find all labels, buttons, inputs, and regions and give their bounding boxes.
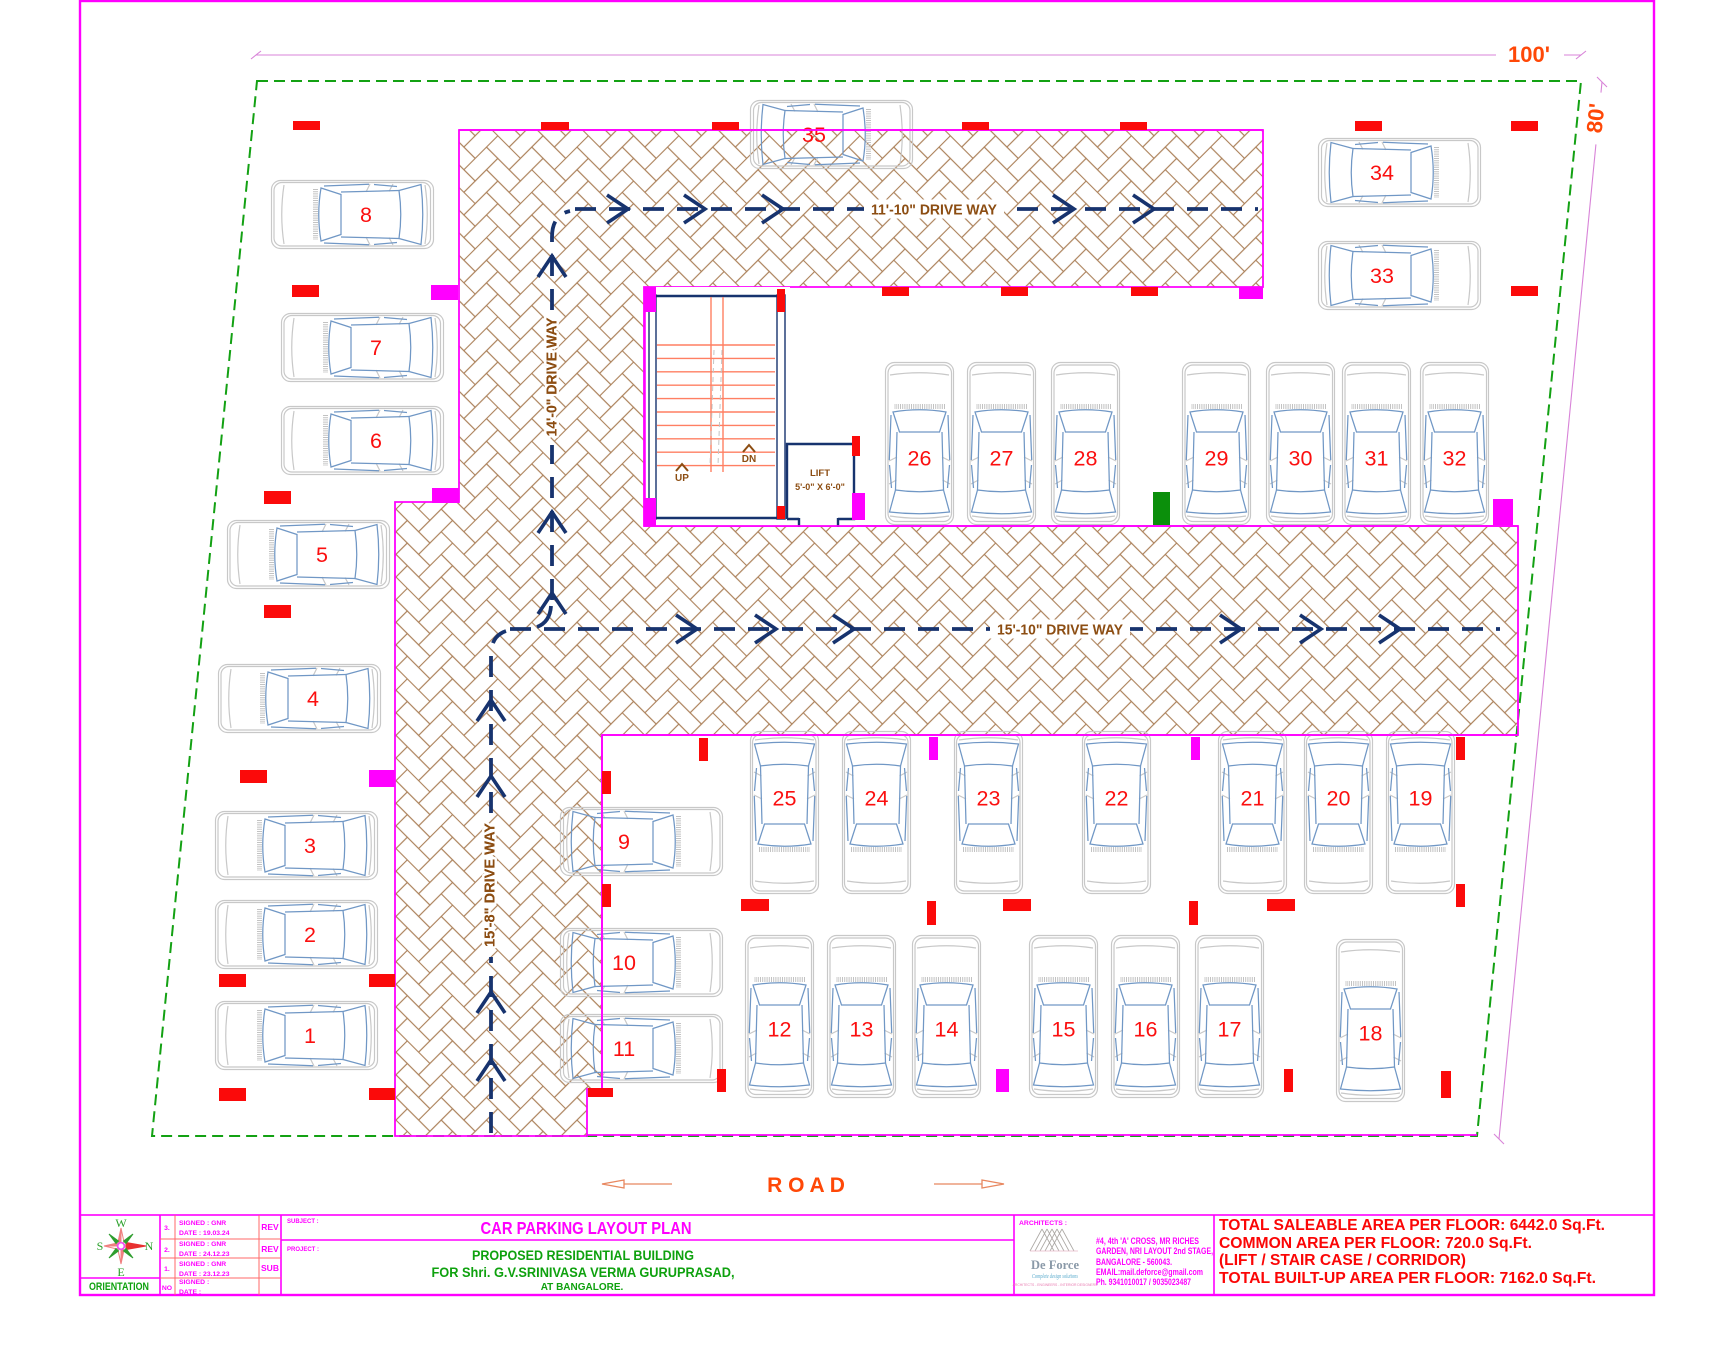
svg-text:32: 32 <box>1443 447 1467 471</box>
svg-text:1.: 1. <box>164 1266 170 1273</box>
svg-text:(LIFT / STAIR CASE / CORRIDOR): (LIFT / STAIR CASE / CORRIDOR) <box>1219 1252 1466 1269</box>
svg-text:11: 11 <box>613 1037 635 1061</box>
svg-text:5'-0" X 6'-0": 5'-0" X 6'-0" <box>795 482 845 492</box>
svg-text:SIGNED : GNR: SIGNED : GNR <box>179 1220 226 1227</box>
svg-text:SIGNED : GNR: SIGNED : GNR <box>179 1241 226 1248</box>
svg-text:SIGNED : GNR: SIGNED : GNR <box>179 1261 226 1268</box>
svg-text:18: 18 <box>1359 1022 1383 1046</box>
svg-text:22: 22 <box>1105 787 1129 811</box>
svg-text:ARCHITECTS - ENGINEERS - INTER: ARCHITECTS - ENGINEERS - INTERIOR DESIGN… <box>1013 1283 1099 1287</box>
svg-text:3: 3 <box>304 834 316 858</box>
svg-text:2.: 2. <box>164 1247 170 1254</box>
svg-text:DATE : 24.12.23: DATE : 24.12.23 <box>179 1251 230 1258</box>
svg-text:TOTAL SALEABLE AREA PER FLOOR:: TOTAL SALEABLE AREA PER FLOOR: 6442.0 Sq… <box>1219 1217 1605 1234</box>
svg-text:100': 100' <box>1508 42 1550 67</box>
svg-text:DATE : 23.12.23: DATE : 23.12.23 <box>179 1271 230 1278</box>
svg-text:2: 2 <box>304 923 316 947</box>
svg-text:REV: REV <box>261 1222 279 1232</box>
svg-text:27: 27 <box>990 447 1014 471</box>
svg-text:15: 15 <box>1052 1018 1076 1042</box>
svg-text:Complete design solutions: Complete design solutions <box>1032 1274 1078 1280</box>
svg-text:DATE :: DATE : <box>179 1289 201 1296</box>
svg-text:ARCHITECTS :: ARCHITECTS : <box>1019 1220 1067 1227</box>
svg-text:23: 23 <box>977 787 1001 811</box>
svg-text:N: N <box>145 1239 154 1253</box>
svg-text:26: 26 <box>908 447 932 471</box>
svg-text:GARDEN, NRI LAYOUT 2nd STAGE,: GARDEN, NRI LAYOUT 2nd STAGE, <box>1096 1246 1213 1257</box>
svg-text:FOR Shri. G.V.SRINIVASA VERMA: FOR Shri. G.V.SRINIVASA VERMA GURUPRASAD… <box>432 1265 735 1280</box>
svg-text:REV: REV <box>261 1244 279 1254</box>
svg-text:ORIENTATION: ORIENTATION <box>89 1281 149 1293</box>
svg-text:14'-0" DRIVE WAY: 14'-0" DRIVE WAY <box>544 318 561 437</box>
svg-text:LIFT: LIFT <box>810 468 830 479</box>
svg-text:16: 16 <box>1134 1018 1158 1042</box>
svg-text:14: 14 <box>935 1018 959 1042</box>
svg-text:24: 24 <box>865 787 889 811</box>
svg-text:DN: DN <box>742 454 756 465</box>
svg-text:6: 6 <box>370 429 382 453</box>
svg-text:17: 17 <box>1218 1018 1242 1042</box>
svg-text:De Force: De Force <box>1031 1258 1079 1272</box>
svg-text:PROJECT :: PROJECT : <box>287 1247 319 1253</box>
svg-text:5: 5 <box>316 543 328 567</box>
svg-text:20: 20 <box>1327 787 1351 811</box>
svg-text:29: 29 <box>1205 447 1229 471</box>
svg-text:COMMON AREA PER FLOOR: 720.0 S: COMMON AREA PER FLOOR: 720.0 Sq.Ft. <box>1219 1235 1532 1252</box>
svg-text:15'-8" DRIVE WAY: 15'-8" DRIVE WAY <box>482 823 499 947</box>
svg-text:28: 28 <box>1074 447 1098 471</box>
svg-text:31: 31 <box>1365 447 1389 471</box>
svg-text:SIGNED :: SIGNED : <box>179 1279 209 1286</box>
svg-text:19: 19 <box>1409 787 1433 811</box>
svg-text:10: 10 <box>612 951 636 975</box>
svg-text:11'-10" DRIVE WAY: 11'-10" DRIVE WAY <box>871 202 997 219</box>
svg-text:7: 7 <box>370 336 382 360</box>
svg-text:S: S <box>97 1239 104 1253</box>
svg-text:3.: 3. <box>164 1225 170 1232</box>
svg-text:25: 25 <box>773 787 797 811</box>
svg-text:AT BANGALORE.: AT BANGALORE. <box>541 1282 624 1293</box>
svg-text:TOTAL BUILT-UP AREA PER FLOOR:: TOTAL BUILT-UP AREA PER FLOOR: 7162.0 Sq… <box>1219 1270 1596 1287</box>
svg-text:Ph. 9341010017 / 9035023487: Ph. 9341010017 / 9035023487 <box>1096 1277 1191 1288</box>
svg-text:CAR PARKING LAYOUT PLAN: CAR PARKING LAYOUT PLAN <box>481 1218 692 1238</box>
svg-text:R O A D: R O A D <box>767 1174 845 1197</box>
svg-text:DATE : 19.03.24: DATE : 19.03.24 <box>179 1230 230 1237</box>
svg-text:34: 34 <box>1370 161 1394 185</box>
svg-text:33: 33 <box>1370 264 1394 288</box>
svg-text:W: W <box>115 1216 127 1230</box>
svg-text:SUBJECT :: SUBJECT : <box>287 1219 319 1225</box>
svg-text:8: 8 <box>360 203 372 227</box>
svg-text:15'-10" DRIVE WAY: 15'-10" DRIVE WAY <box>997 622 1123 639</box>
svg-text:21: 21 <box>1241 787 1265 811</box>
svg-text:4: 4 <box>307 687 319 711</box>
svg-text:UP: UP <box>675 473 689 484</box>
svg-text:9: 9 <box>618 830 630 854</box>
svg-text:SUB: SUB <box>261 1263 279 1273</box>
svg-text:35: 35 <box>802 123 826 147</box>
svg-text:30: 30 <box>1289 447 1313 471</box>
svg-text:E: E <box>117 1265 124 1279</box>
svg-text:80': 80' <box>1582 102 1610 134</box>
svg-text:1: 1 <box>304 1024 316 1048</box>
svg-text:13: 13 <box>850 1018 874 1042</box>
svg-text:12: 12 <box>768 1018 792 1042</box>
svg-text:PROPOSED RESIDENTIAL BUILDING: PROPOSED RESIDENTIAL BUILDING <box>472 1248 694 1263</box>
svg-text:NO: NO <box>162 1285 172 1292</box>
